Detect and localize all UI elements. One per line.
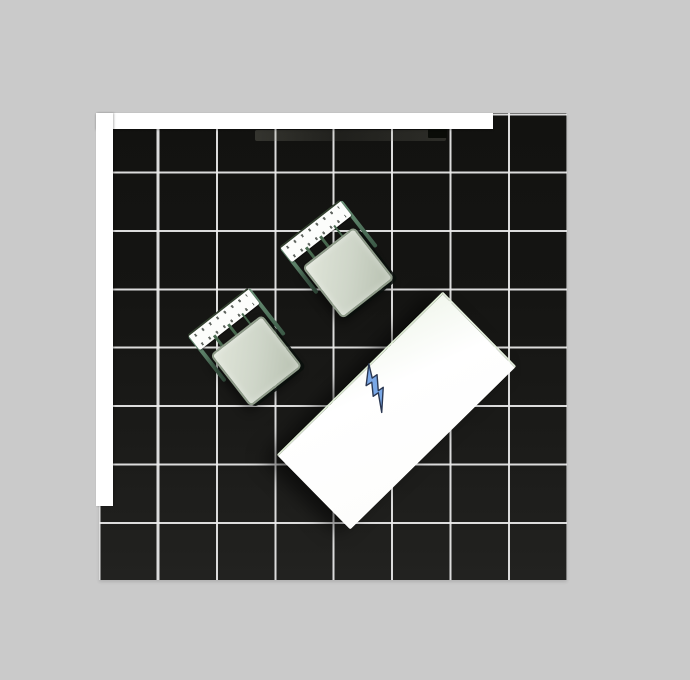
wall-left [96,113,113,506]
scene-viewport [0,0,690,680]
counter-shadow-strip [255,130,446,141]
wall-top [96,113,493,129]
wall-mounted-object [428,129,447,138]
